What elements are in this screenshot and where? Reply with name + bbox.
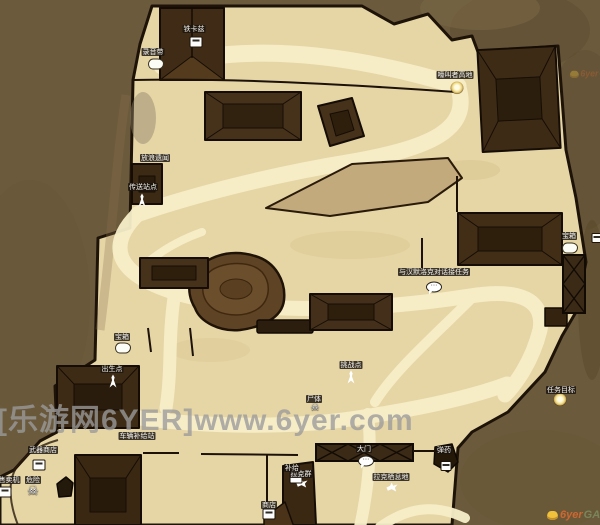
logo-site-text: 6yer [560, 509, 583, 521]
map-viewport: 铁卡兹录音带放浪遗闻嚎叫者高地宝箱与汉默洛克对话接任务挑战点宝箱传送站点出生点任… [0, 0, 600, 525]
map-label: 售卖机 [0, 476, 21, 484]
vending-icon[interactable] [190, 37, 203, 48]
map-label: 铁卡兹 [183, 25, 206, 33]
vending-icon[interactable] [33, 460, 46, 471]
map-label: 宝箱 [114, 333, 130, 341]
coin-icon [547, 511, 558, 520]
dot-icon[interactable] [554, 394, 567, 407]
map-label: 出生点 [101, 365, 124, 373]
map-label: 危险 [25, 476, 41, 484]
box-icon[interactable] [592, 233, 600, 243]
logo-suffix-text: GAME [584, 509, 600, 521]
vending-icon[interactable] [263, 509, 276, 520]
dot-icon[interactable] [451, 82, 464, 95]
coin-icon [570, 70, 579, 77]
map-label: 宝箱 [561, 232, 577, 240]
cloud-icon[interactable] [115, 343, 131, 354]
cloud-icon[interactable] [562, 243, 578, 254]
map-label: 商店 [261, 501, 277, 509]
map-label: 录音带 [142, 48, 165, 56]
map-label: 补给 [284, 464, 300, 472]
map-label: 传送站点 [128, 183, 158, 191]
map-label: 弹药 [436, 446, 452, 454]
map-label: 任务目标 [546, 386, 576, 394]
person-icon[interactable] [347, 371, 356, 384]
site-logo: 6yer GAME [547, 509, 600, 521]
person-icon[interactable] [109, 375, 118, 388]
vending-icon[interactable] [0, 487, 12, 498]
box-icon[interactable] [441, 461, 452, 471]
cloud-icon[interactable] [148, 59, 164, 70]
map-label: 大门 [356, 445, 372, 453]
map-label: 与汉默洛克对话接任务 [398, 268, 470, 276]
site-logo-faint: 6yer GAME [570, 69, 600, 79]
map-label: 武器商店 [28, 446, 58, 454]
bird-icon[interactable] [387, 483, 398, 492]
markers-layer: 铁卡兹录音带放浪遗闻嚎叫者高地宝箱与汉默洛克对话接任务挑战点宝箱传送站点出生点任… [0, 0, 600, 525]
watermark-text: [乐游网6YER]www.6yer.com [0, 395, 414, 439]
logo-site-text: 6yer [580, 69, 598, 79]
map-label: 放浪遗闻 [140, 154, 170, 162]
speech-icon[interactable] [358, 456, 374, 467]
person-icon[interactable] [138, 194, 147, 207]
map-label: 挑战点 [340, 361, 363, 369]
map-label: 嚎叫者高地 [437, 71, 474, 79]
map-label: 拉克栖息地 [373, 473, 410, 481]
skull-icon[interactable]: ☠ [27, 485, 39, 498]
speech-icon[interactable] [426, 282, 442, 293]
